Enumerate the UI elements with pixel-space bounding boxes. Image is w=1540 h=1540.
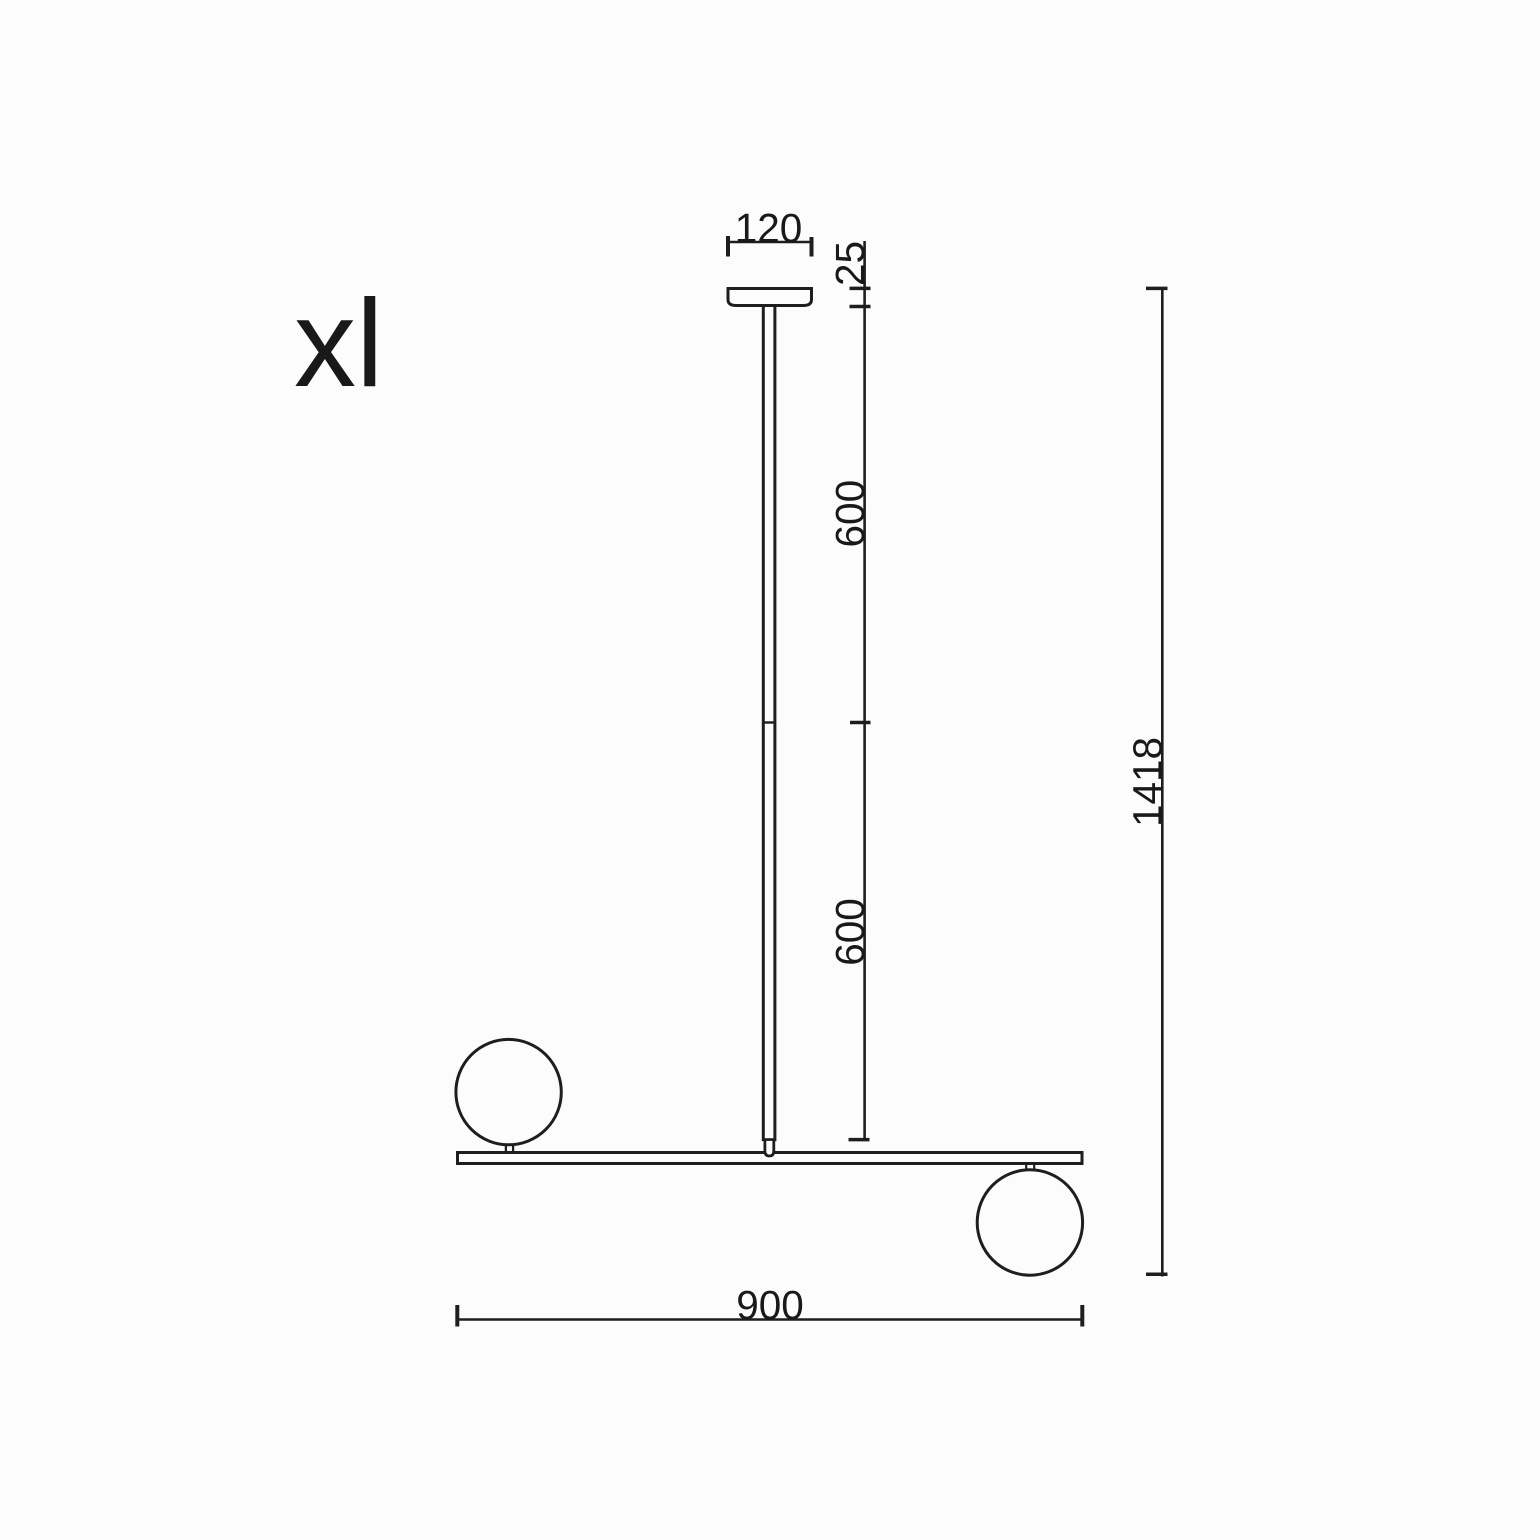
svg-text:xl: xl <box>294 275 384 413</box>
svg-text:25: 25 <box>827 241 873 286</box>
svg-text:900: 900 <box>736 1282 804 1328</box>
svg-text:120: 120 <box>735 205 803 251</box>
svg-text:600: 600 <box>827 480 873 548</box>
svg-text:1418: 1418 <box>1125 737 1171 827</box>
svg-text:600: 600 <box>827 898 873 966</box>
